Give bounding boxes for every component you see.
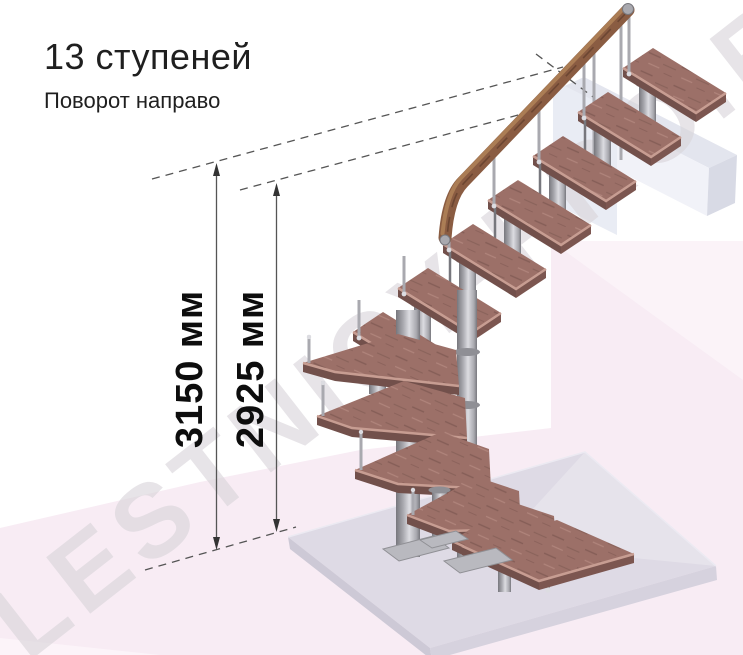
staircase-render [0,0,743,655]
staircase-diagram: LESTNICY-PRO.RU 13 ступеней Поворот напр… [0,0,743,655]
winder-flight [303,334,556,562]
winder-tread [303,334,459,395]
rail-bottom-cap [440,235,450,245]
rail-top-cap [623,4,634,15]
